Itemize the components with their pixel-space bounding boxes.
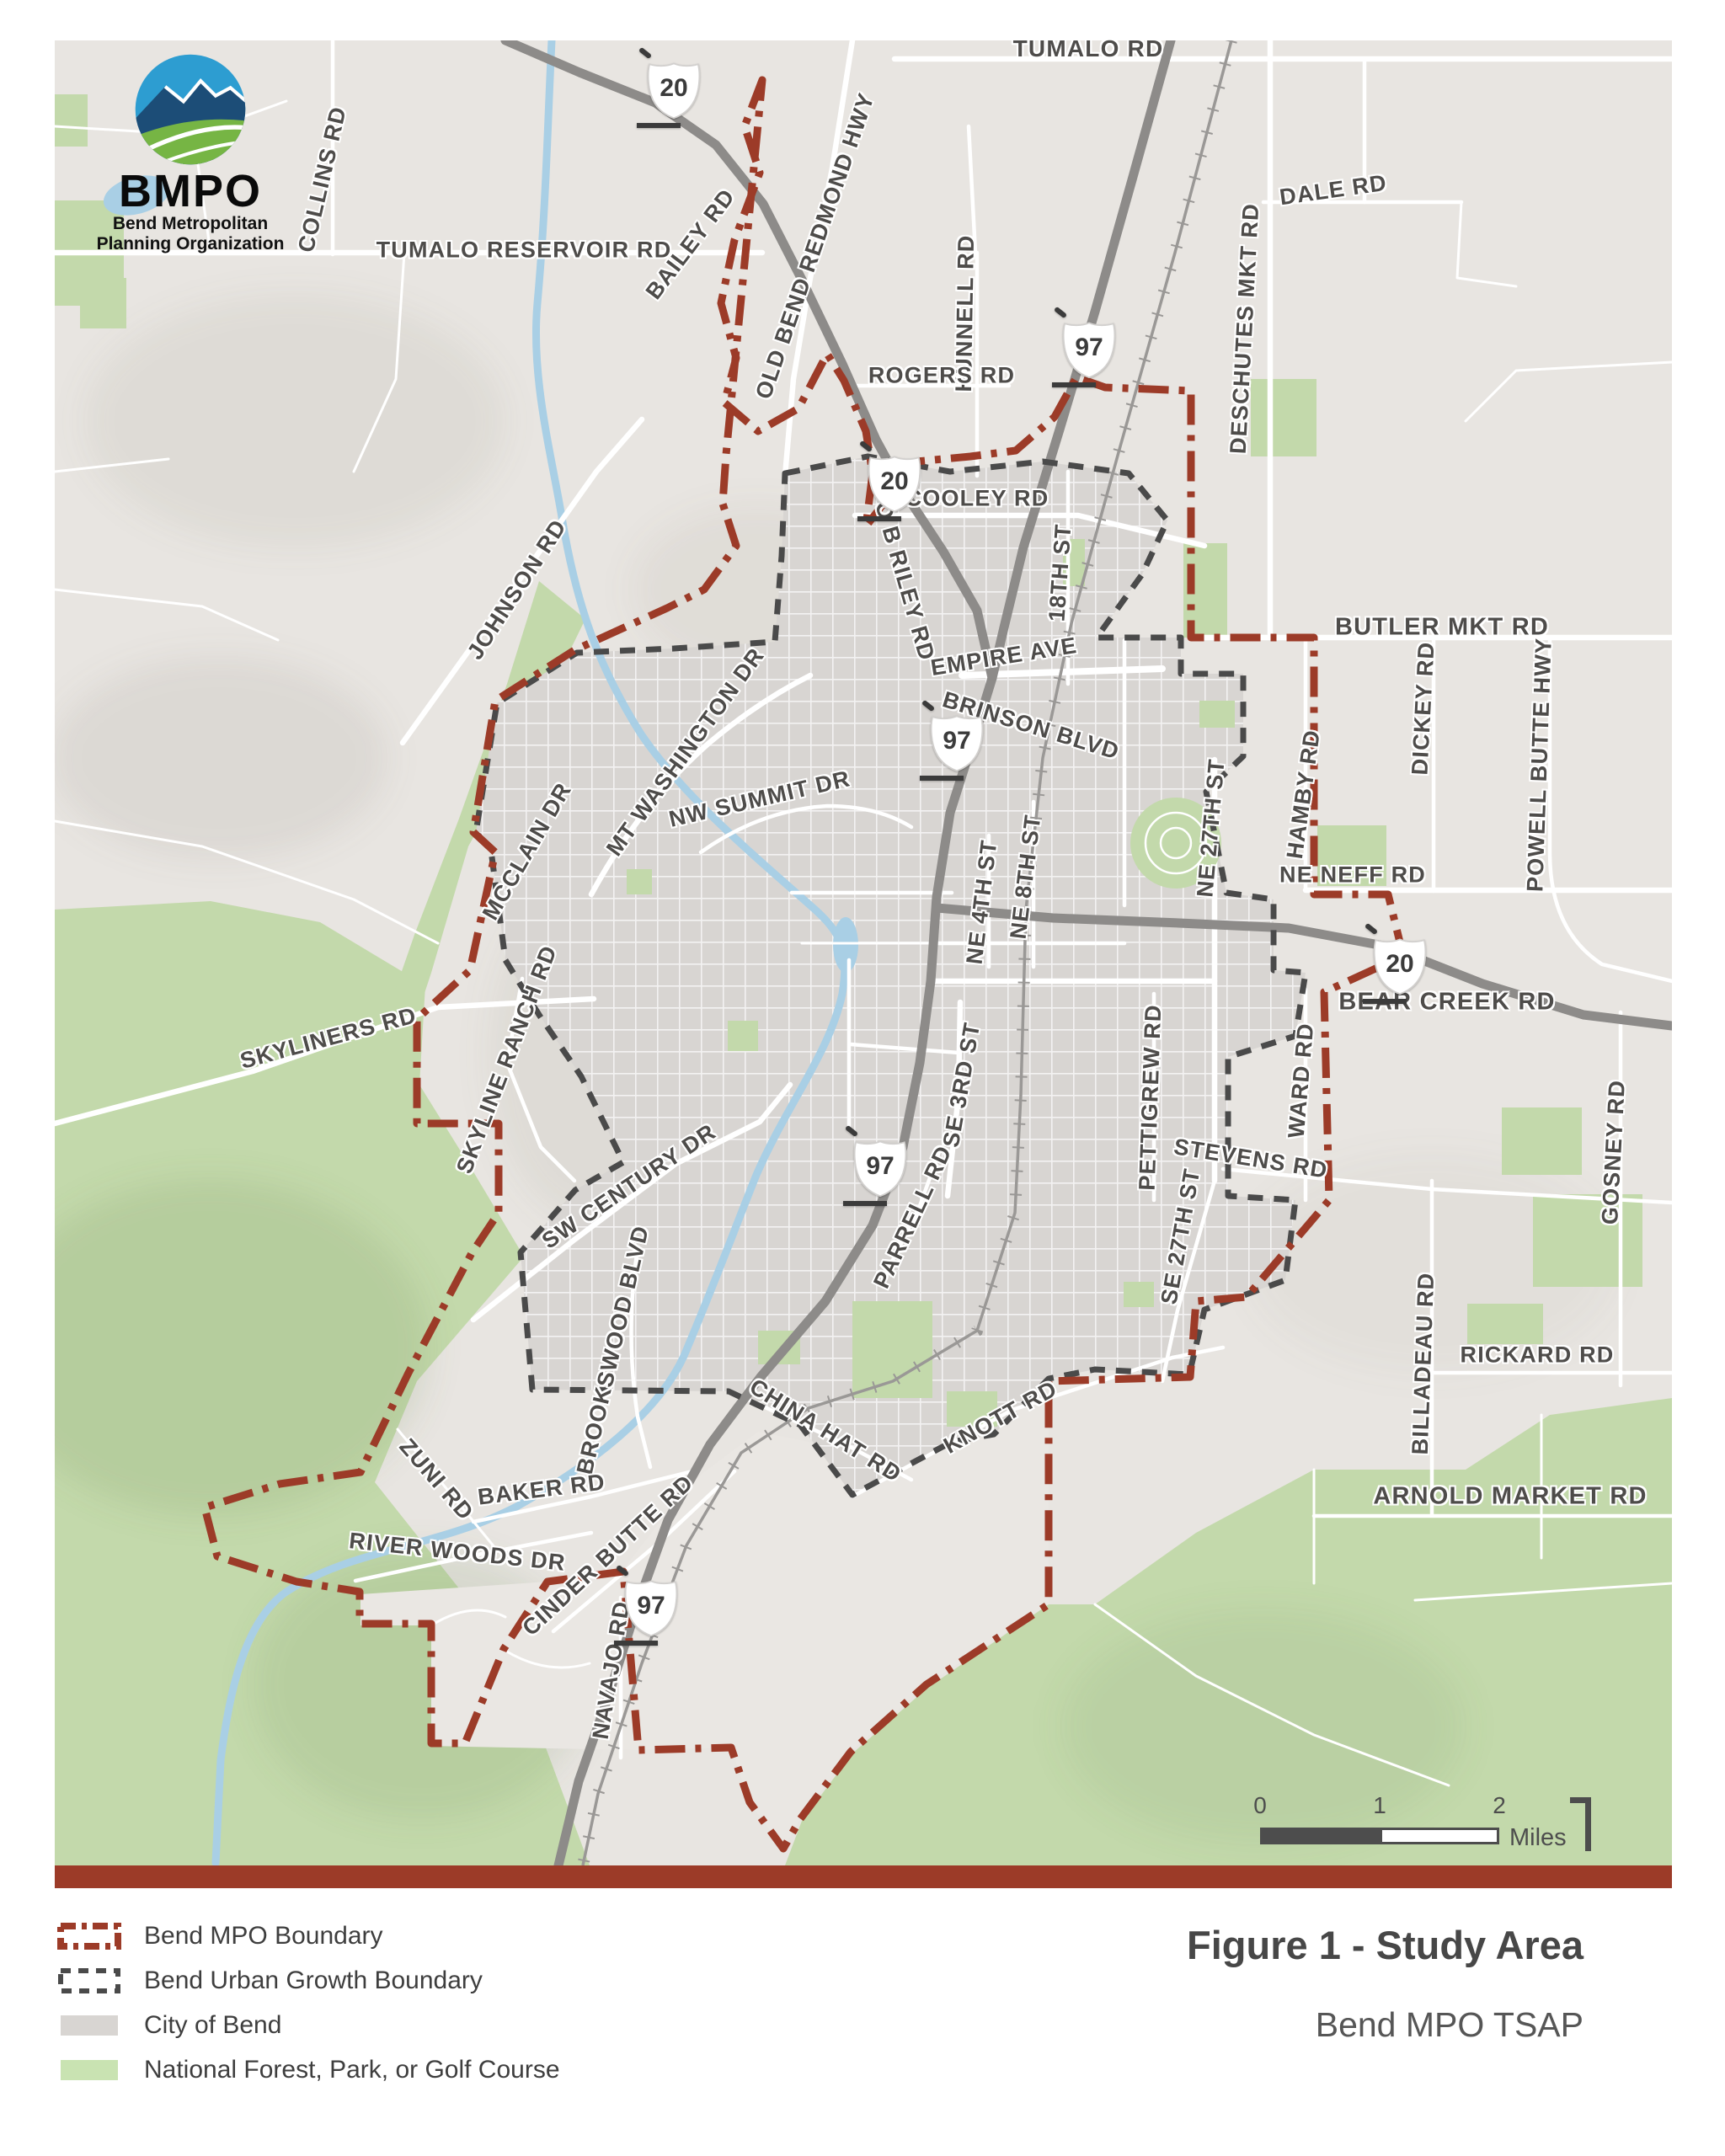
legend-label: National Forest, Park, or Golf Course [144,2056,560,2084]
legend-swatch [56,2056,122,2084]
title-block: Figure 1 - Study Area Bend MPO TSAP [994,1922,1583,2045]
legend-label: City of Bend [144,2011,281,2040]
logo-acronym: BMPO [81,168,300,214]
legend-item: National Forest, Park, or Golf Course [56,2047,814,2092]
map-frame-band [55,1865,1672,1888]
figure-subtitle: Bend MPO TSAP [994,2005,1583,2045]
logo-org-line2: Planning Organization [81,234,300,254]
legend-swatch [56,1922,122,1951]
scale-unit-label: Miles [1509,1824,1567,1852]
scale-bar-segment-open [1380,1828,1499,1844]
scale-bar-segment-filled [1260,1828,1380,1844]
scale-tick-1: 1 [1373,1792,1386,1819]
legend: Bend MPO Boundary Bend Urban Growth Boun… [56,1913,814,2092]
bmpo-logo-icon [133,52,248,167]
legend-label: Bend Urban Growth Boundary [144,1967,483,1995]
legend-item: Bend MPO Boundary [56,1913,814,1958]
map-figure-page: TUMALO RDCOLLINS RDTUMALO RESERVOIR RDBA… [0,0,1725,2156]
figure-title: Figure 1 - Study Area [994,1922,1583,1968]
legend-swatch [56,1967,122,1995]
legend-item: Bend Urban Growth Boundary [56,1958,814,2003]
legend-label: Bend MPO Boundary [144,1922,383,1951]
bmpo-logo: BMPO Bend Metropolitan Planning Organiza… [81,52,300,254]
scale-tick-0: 0 [1253,1792,1267,1819]
legend-item: City of Bend [56,2003,814,2047]
legend-swatch [56,2011,122,2040]
scale-tick-2: 2 [1493,1792,1506,1819]
north-mark-arm [1570,1797,1591,1803]
scale-bar: 0 1 2 Miles [1255,1792,1609,1860]
logo-org-line1: Bend Metropolitan [81,214,300,234]
pilot-butte [1130,798,1221,889]
north-mark [1585,1797,1591,1851]
